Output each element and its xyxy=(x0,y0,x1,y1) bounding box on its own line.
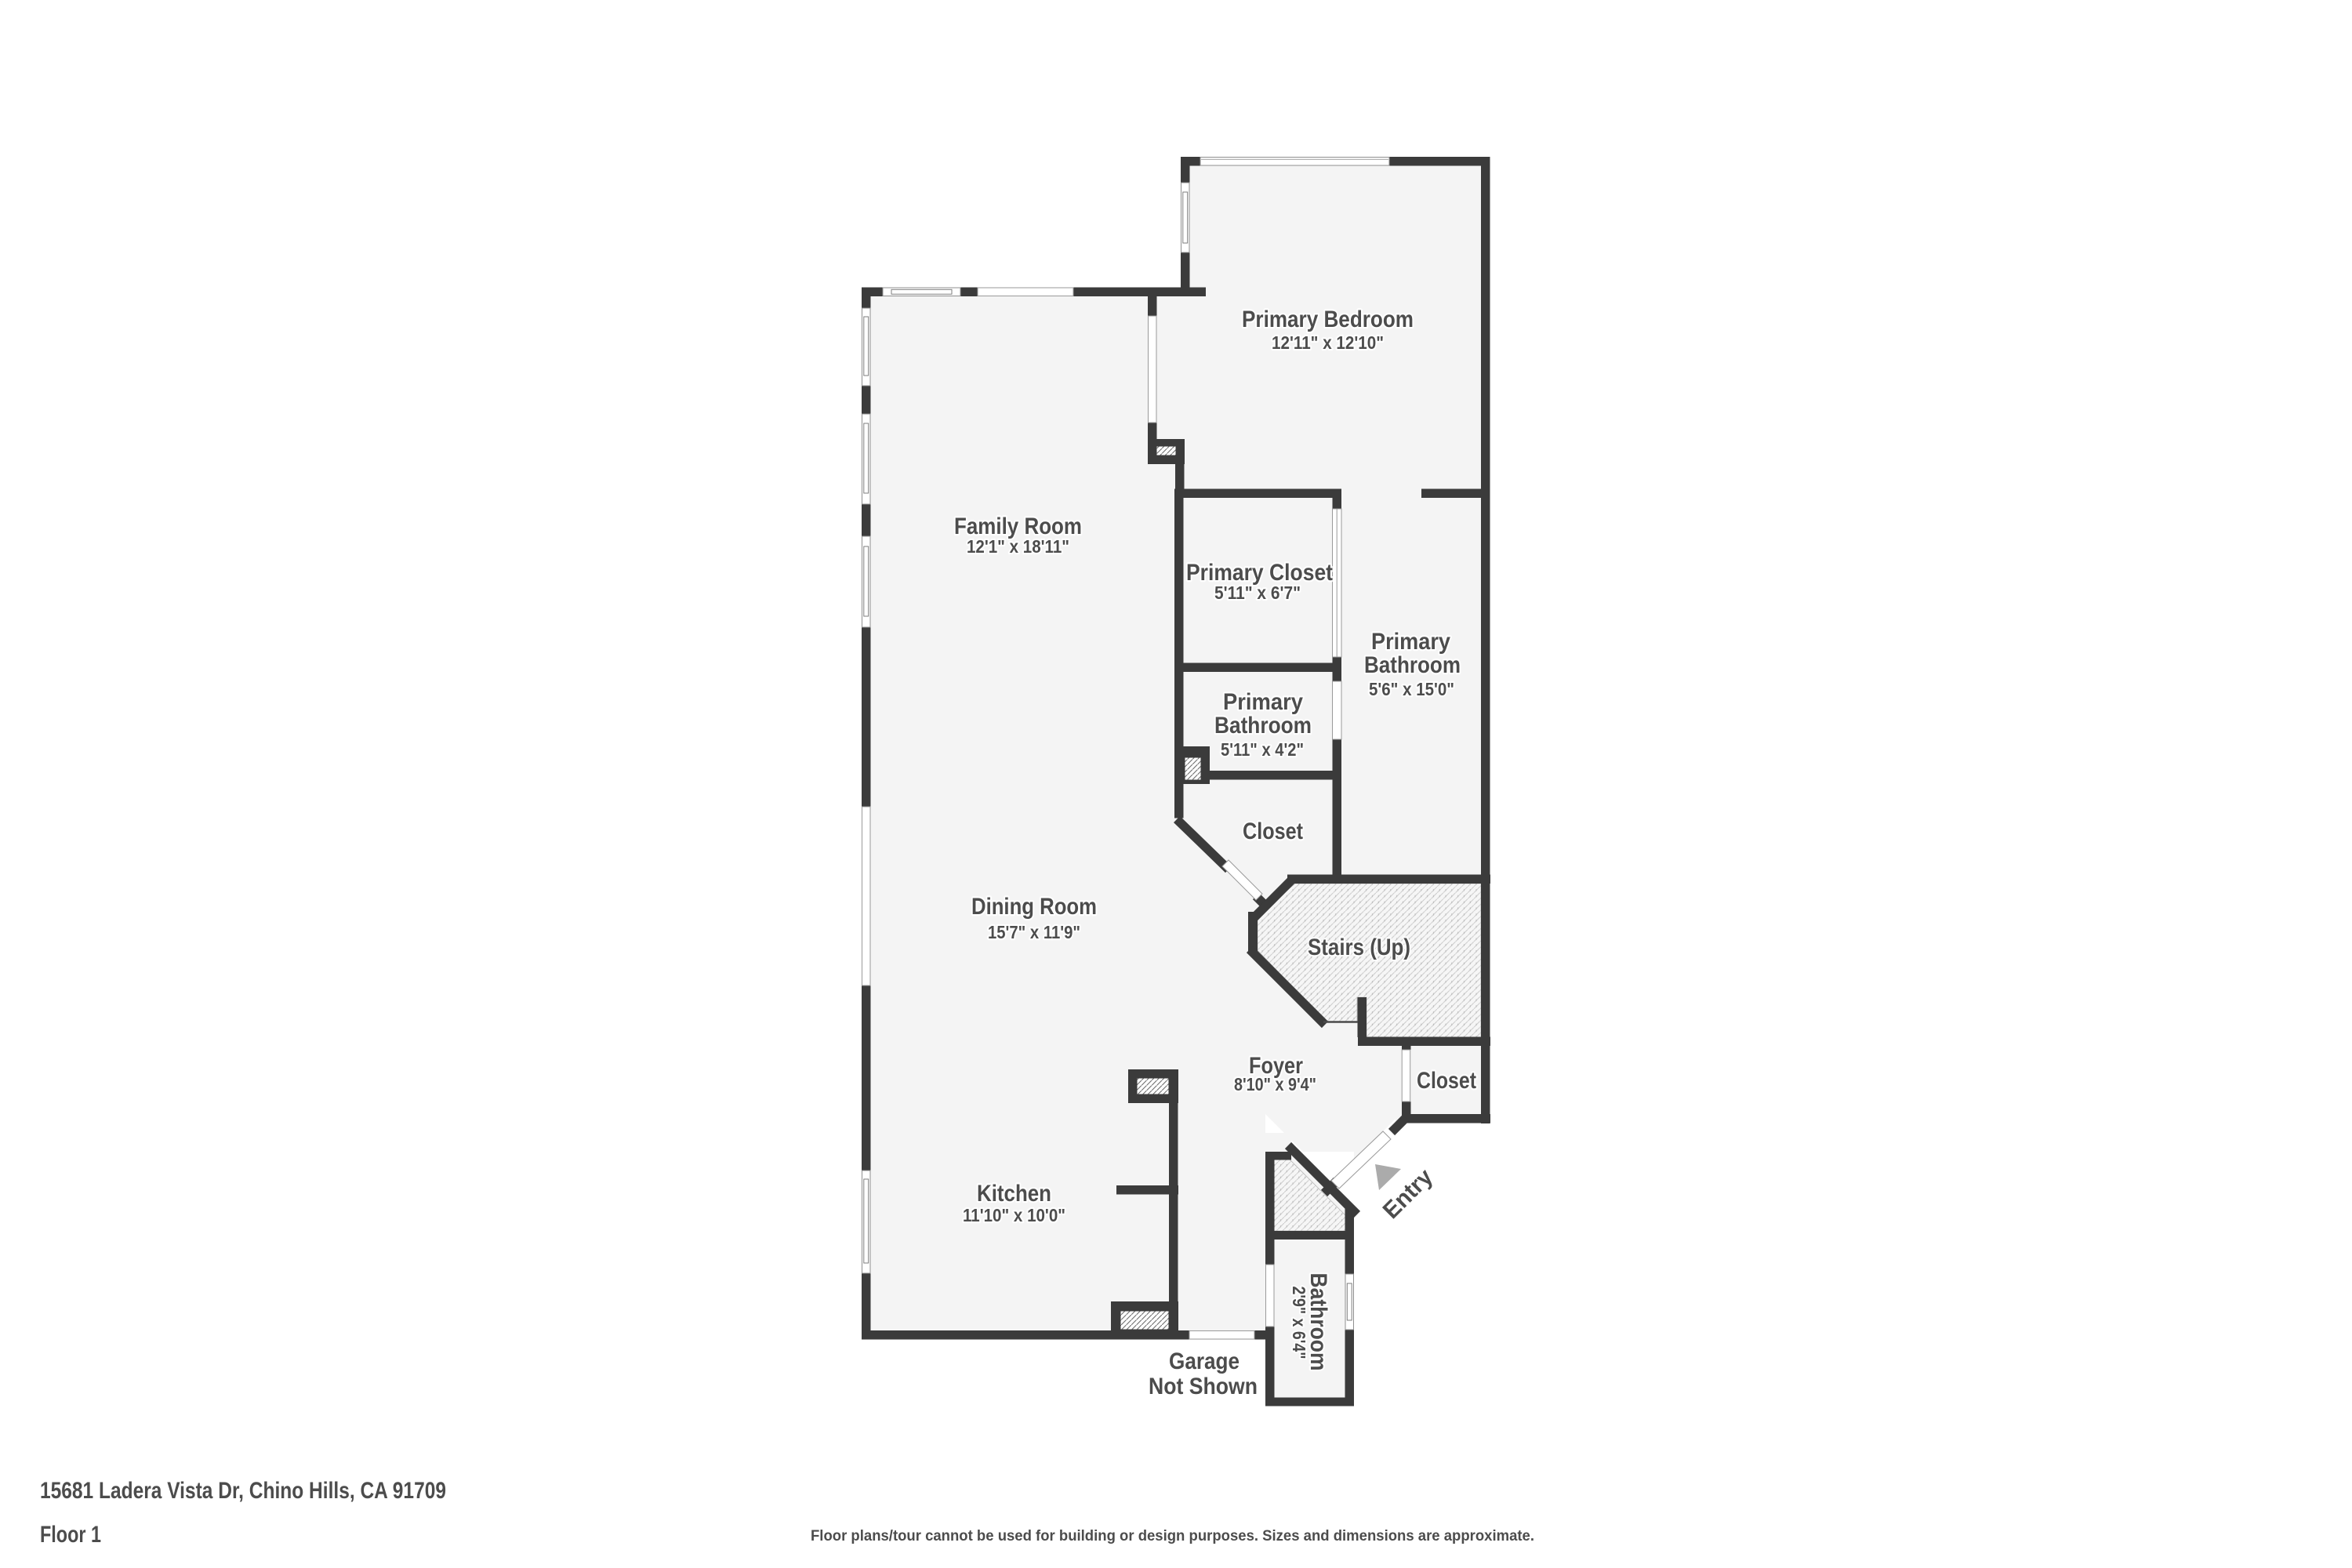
svg-text:5'11" x 4'2": 5'11" x 4'2" xyxy=(1221,739,1304,760)
svg-text:Closet: Closet xyxy=(1417,1068,1476,1094)
svg-text:Primary: Primary xyxy=(1371,629,1450,655)
svg-text:12'11" x 12'10": 12'11" x 12'10" xyxy=(1272,332,1384,353)
svg-text:Primary Bedroom: Primary Bedroom xyxy=(1242,307,1414,332)
svg-text:Not Shown: Not Shown xyxy=(1149,1374,1258,1399)
svg-text:12'1" x 18'11": 12'1" x 18'11" xyxy=(967,536,1069,557)
svg-text:5'11" x 6'7": 5'11" x 6'7" xyxy=(1214,583,1301,603)
svg-text:Floor plans/tour cannot be use: Floor plans/tour cannot be used for buil… xyxy=(811,1527,1534,1544)
svg-text:8'10" x 9'4": 8'10" x 9'4" xyxy=(1234,1074,1316,1094)
svg-text:Garage: Garage xyxy=(1169,1348,1240,1374)
svg-text:Stairs (Up): Stairs (Up) xyxy=(1308,935,1410,960)
svg-text:11'10" x 10'0": 11'10" x 10'0" xyxy=(963,1205,1065,1225)
svg-text:Closet: Closet xyxy=(1243,818,1303,844)
svg-text:Floor 1: Floor 1 xyxy=(40,1522,101,1548)
svg-text:15681 Ladera Vista Dr, Chino H: 15681 Ladera Vista Dr, Chino Hills, CA 9… xyxy=(40,1478,446,1504)
svg-text:2'9" x 6'4": 2'9" x 6'4" xyxy=(1289,1287,1309,1359)
svg-text:Bathroom: Bathroom xyxy=(1364,652,1461,678)
svg-text:Dining Room: Dining Room xyxy=(971,894,1097,920)
svg-text:5'6" x 15'0": 5'6" x 15'0" xyxy=(1369,679,1454,699)
svg-text:15'7" x 11'9": 15'7" x 11'9" xyxy=(988,922,1080,942)
svg-text:Kitchen: Kitchen xyxy=(977,1181,1051,1207)
svg-text:Bathroom: Bathroom xyxy=(1214,713,1312,739)
svg-text:Primary: Primary xyxy=(1223,689,1303,715)
